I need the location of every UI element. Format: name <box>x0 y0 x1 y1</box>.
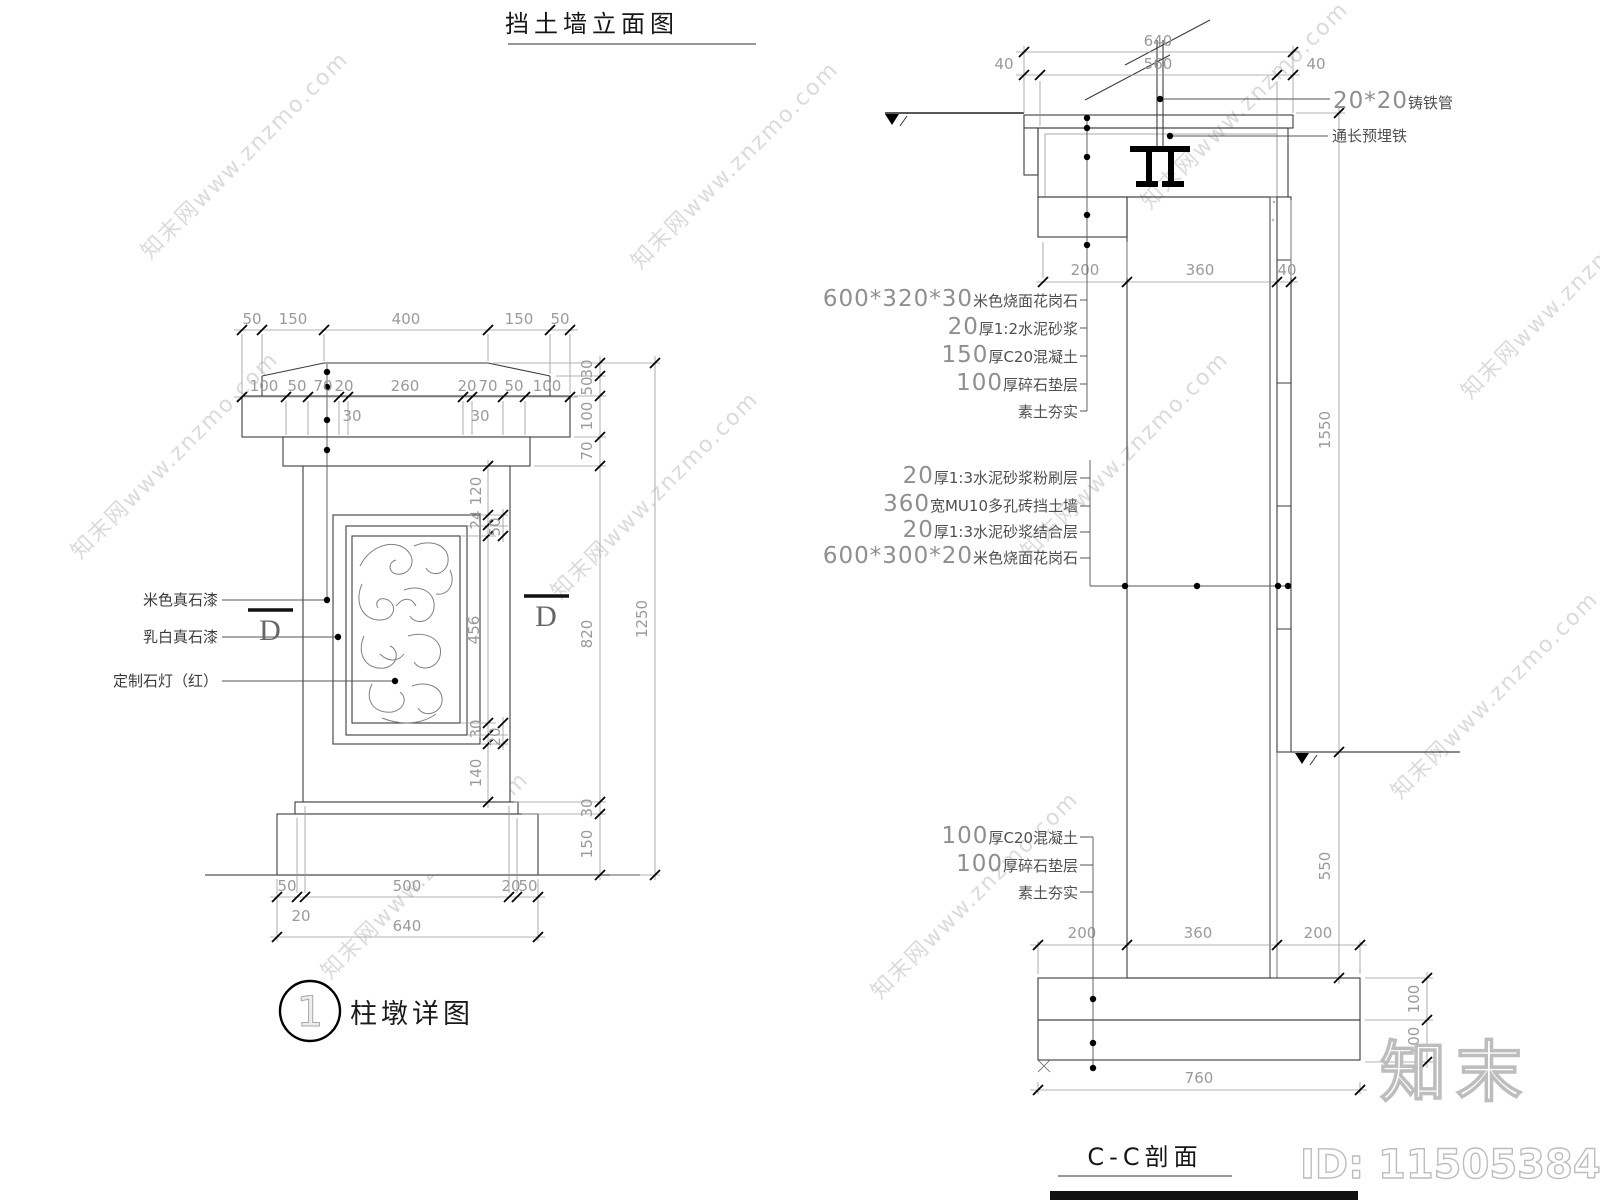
dim-label: 50 <box>242 310 261 328</box>
dim-label: 200 <box>1068 924 1097 942</box>
granite-coping-slab <box>1024 115 1293 128</box>
dim-label: 50 <box>277 877 296 895</box>
dim-label: 150 <box>505 310 534 328</box>
dim-label: 140 <box>467 759 485 788</box>
dim-label: 260 <box>391 377 420 395</box>
dim-label: 20 <box>334 377 353 395</box>
annotation-embed: 通长预埋铁 <box>1332 127 1407 145</box>
dim-label: 40 <box>994 55 1013 73</box>
dim-label: 560 <box>1144 55 1173 73</box>
dim-label: 30 <box>578 798 596 817</box>
section-mark-d-left: D <box>259 614 281 647</box>
annotation: 360宽MU10多孔砖挡土墙 <box>883 491 1078 517</box>
dim-label: 50 <box>287 377 306 395</box>
dim-label: 100 <box>533 377 562 395</box>
dim-label: 1250 <box>633 600 651 638</box>
dim-label: 200 <box>1304 924 1333 942</box>
annotation: 150厚C20混凝土 <box>942 342 1078 368</box>
annotation: 素土夯实 <box>1018 884 1078 902</box>
watermark-text: 知末网www.znzmo.com <box>1457 187 1600 404</box>
dim-label: 50 <box>578 376 596 395</box>
dim-label: 500 <box>393 877 422 895</box>
annotation: 600*320*30米色烧面花岗石 <box>823 286 1078 312</box>
drawing-canvas: 知末网www.znzmo.com 知末网www.znzmo.com 知末网www… <box>0 0 1600 1200</box>
dim-label: 100 <box>578 402 596 431</box>
annotation: 20厚1:2水泥砂浆 <box>948 314 1078 340</box>
dim-label: 20 <box>457 377 476 395</box>
dim-label: 50 <box>486 517 504 536</box>
detail-number: 1 <box>297 987 324 1036</box>
ground-hatch-right <box>1295 753 1420 766</box>
elevation-drawing: 挡土墙立面图 <box>113 10 756 1041</box>
dim-label: 30 <box>467 719 485 738</box>
dim-label: 640 <box>393 917 422 935</box>
dim-label: 820 <box>578 620 596 649</box>
dim-label: 70 <box>578 441 596 460</box>
bottom-bar <box>1050 1191 1358 1200</box>
dim-label: 20 <box>291 907 310 925</box>
dim-label: 760 <box>1185 1069 1214 1087</box>
material-label-paint1: 米色真石漆 <box>143 591 218 609</box>
dim-label: 20 <box>486 727 504 746</box>
footing-concrete <box>1038 978 1360 1020</box>
annotation: 100厚碎石垫层 <box>956 370 1078 396</box>
annotation: 20厚1:3水泥砂浆粉刷层 <box>903 463 1078 489</box>
dim-label: 100 <box>250 377 279 395</box>
dim-label: 30 <box>342 407 361 425</box>
dim-label: 24 <box>467 510 485 529</box>
dim-label: 40 <box>1306 55 1325 73</box>
watermark-text: 知末网www.znzmo.com <box>1387 587 1600 804</box>
ground-hatch-left <box>885 114 1024 127</box>
annotation-pipe: 20*20铸铁管 <box>1333 88 1453 114</box>
section-annotations: 20*20铸铁管 通长预埋铁 600*320*30米色烧面花岗石 20厚1:2水… <box>823 88 1453 902</box>
material-label-paint2: 乳白真石漆 <box>143 628 218 646</box>
dim-label: 30 <box>578 359 596 378</box>
dim-label: 1550 <box>1316 411 1334 449</box>
dim-label: 360 <box>1184 924 1213 942</box>
detail-title: 柱墩详图 <box>350 999 474 1030</box>
image-id: ID: 1150538465 <box>1300 1142 1600 1188</box>
dim-label: 400 <box>392 310 421 328</box>
footing-gravel <box>1038 1020 1360 1060</box>
elevation-title: 挡土墙立面图 <box>505 10 679 38</box>
dim-label: 150 <box>279 310 308 328</box>
coping-gravel-bed <box>1038 197 1127 237</box>
dim-label: 200 <box>1071 261 1100 279</box>
detail-marker: 1 柱墩详图 <box>280 981 474 1041</box>
dim-label: 50 <box>518 877 537 895</box>
dim-label: 360 <box>1186 261 1215 279</box>
watermark-text: 知末网www.znzmo.com <box>137 47 354 264</box>
dim-label: 456 <box>465 616 483 645</box>
material-label-lamp: 定制石灯（红） <box>113 672 218 690</box>
dim-label: 50 <box>550 310 569 328</box>
dim-label: 40 <box>1277 261 1296 279</box>
annotation: 素土夯实 <box>1018 403 1078 421</box>
cad-sheet: 知末网www.znzmo.com 知末网www.znzmo.com 知末网www… <box>0 0 1600 1200</box>
dim-label: 70 <box>478 377 497 395</box>
znzmo-logo: 知末 <box>1380 1034 1532 1111</box>
watermark-text: 知末网www.znzmo.com <box>627 57 844 274</box>
dim-label: 150 <box>578 830 596 859</box>
dim-label: 50 <box>504 377 523 395</box>
dim-label: 30 <box>470 407 489 425</box>
section-mark-d-right: D <box>535 600 557 633</box>
dim-label: 640 <box>1144 32 1173 50</box>
dim-label: 120 <box>467 477 485 506</box>
dim-label: 100 <box>1405 985 1423 1014</box>
dim-label: 550 <box>1316 852 1334 881</box>
section-title: C-C剖面 <box>1087 1143 1202 1171</box>
site-branding: 知末 ID: 1150538465 <box>1050 1034 1600 1200</box>
coping-step <box>1024 128 1038 175</box>
dim-label: 70 <box>313 377 332 395</box>
